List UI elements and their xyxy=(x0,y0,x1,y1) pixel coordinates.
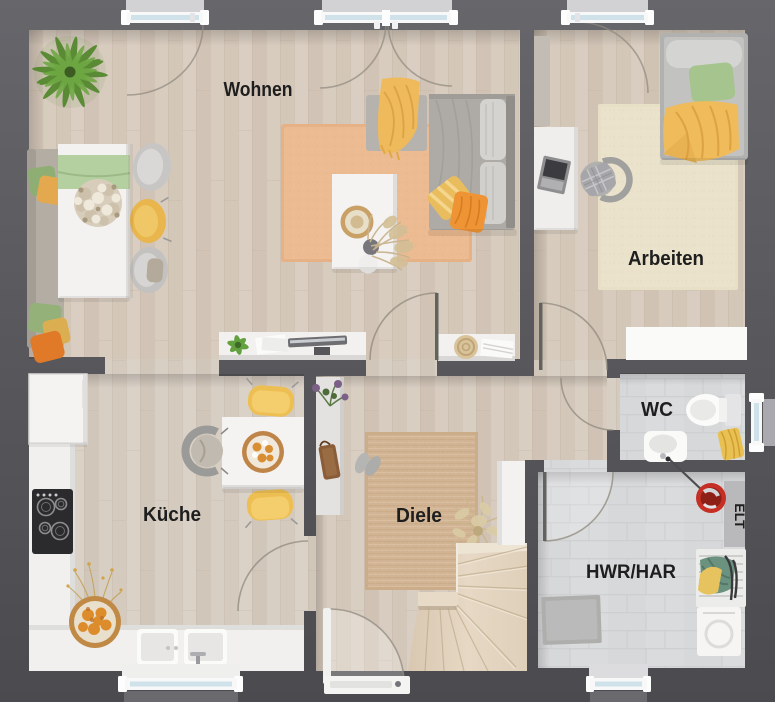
svg-text:Arbeiten: Arbeiten xyxy=(628,248,704,270)
svg-text:Küche: Küche xyxy=(143,504,201,526)
svg-text:HWR/HAR: HWR/HAR xyxy=(586,562,676,583)
svg-text:Wohnen: Wohnen xyxy=(224,79,293,101)
svg-text:WC: WC xyxy=(641,399,673,421)
svg-text:Diele: Diele xyxy=(396,505,442,527)
svg-text:ELT: ELT xyxy=(732,503,748,529)
